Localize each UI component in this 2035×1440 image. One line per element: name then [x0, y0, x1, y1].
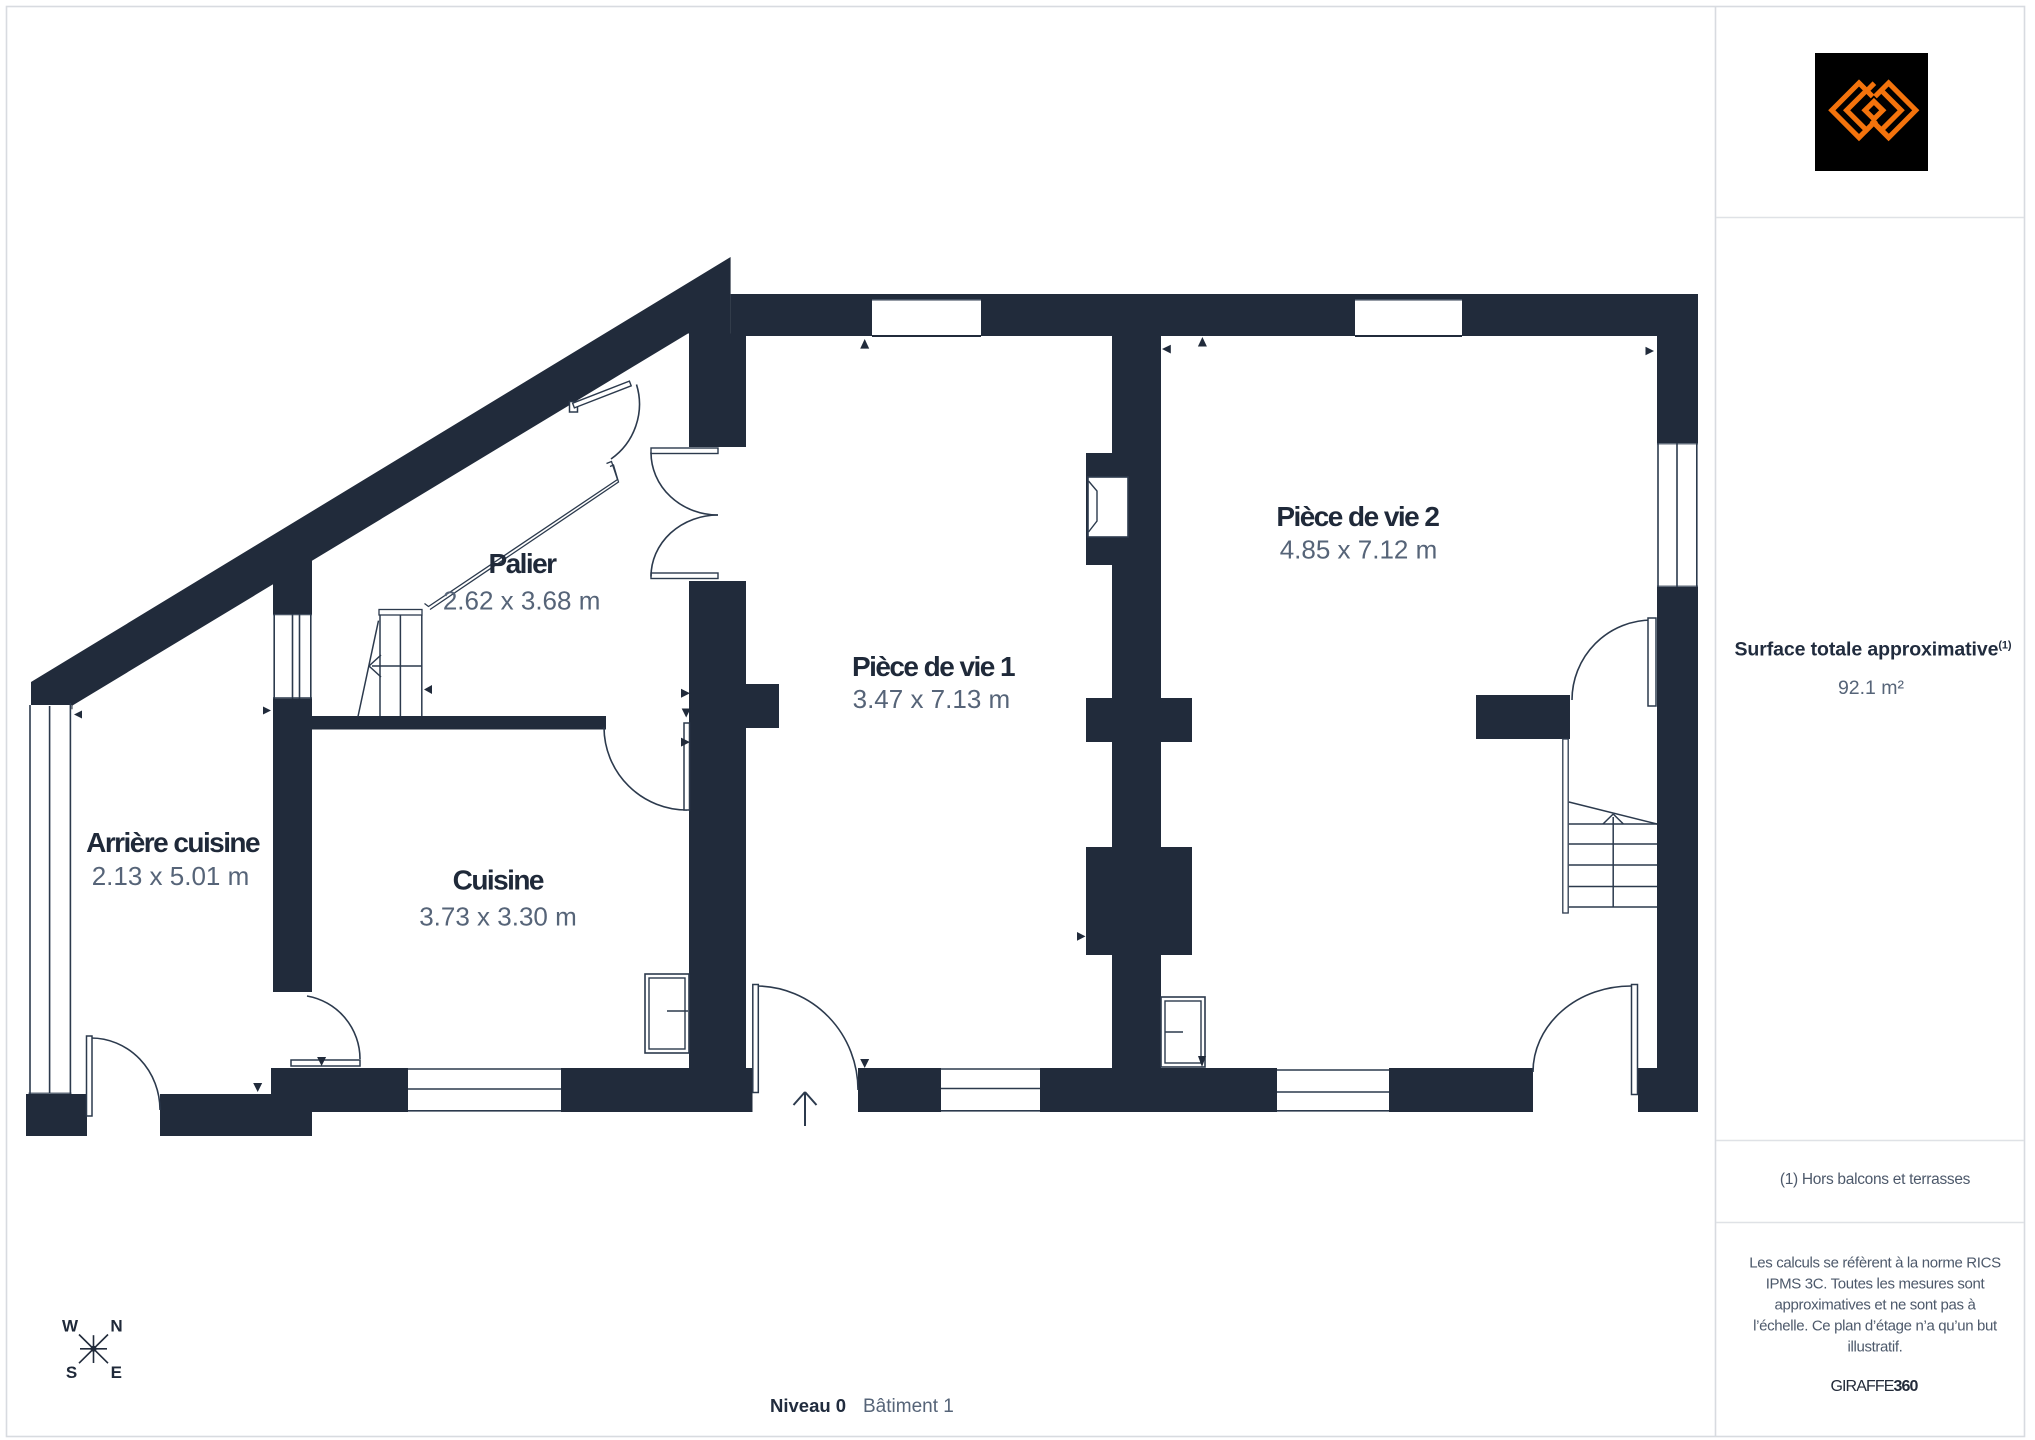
svg-text:Pièce de vie 1: Pièce de vie 1 — [852, 651, 1015, 682]
svg-text:W: W — [62, 1317, 79, 1336]
svg-text:N: N — [110, 1317, 122, 1336]
svg-text:Arrière cuisine: Arrière cuisine — [86, 827, 260, 858]
svg-text:E: E — [111, 1363, 122, 1382]
svg-text:4.85 x 7.12 m: 4.85 x 7.12 m — [1280, 535, 1438, 565]
svg-text:3.73 x 3.30 m: 3.73 x 3.30 m — [419, 902, 577, 932]
svg-text:approximatives et ne sont pas: approximatives et ne sont pas à — [1775, 1297, 1977, 1314]
svg-text:Cuisine: Cuisine — [453, 865, 544, 896]
svg-text:Niveau 0: Niveau 0 — [770, 1395, 846, 1416]
svg-text:2.62 x 3.68 m: 2.62 x 3.68 m — [443, 586, 601, 616]
svg-text:2.13 x 5.01 m: 2.13 x 5.01 m — [92, 861, 250, 891]
svg-text:(1) Hors balcons et terrasses: (1) Hors balcons et terrasses — [1780, 1171, 1971, 1188]
svg-text:Bâtiment 1: Bâtiment 1 — [863, 1396, 954, 1417]
svg-text:92.1 m²: 92.1 m² — [1838, 677, 1905, 699]
svg-text:Pièce de vie 2: Pièce de vie 2 — [1276, 501, 1439, 532]
svg-text:S: S — [66, 1363, 77, 1382]
svg-text:l’échelle. Ce plan d’étage n’a: l’échelle. Ce plan d’étage n’a qu’un but — [1753, 1318, 1998, 1335]
svg-text:GIRAFFE360: GIRAFFE360 — [1830, 1378, 1918, 1395]
svg-text:Palier: Palier — [489, 548, 558, 579]
svg-text:illustratif.: illustratif. — [1848, 1339, 1903, 1356]
svg-text:Surface totale approximative(1: Surface totale approximative(1) — [1735, 639, 2012, 661]
svg-text:Les calculs se réfèrent à la n: Les calculs se réfèrent à la norme RICS — [1749, 1255, 2001, 1272]
svg-text:3.47 x 7.13 m: 3.47 x 7.13 m — [853, 684, 1011, 714]
svg-text:IPMS 3C. Toutes les mesures so: IPMS 3C. Toutes les mesures sont — [1766, 1276, 1986, 1293]
